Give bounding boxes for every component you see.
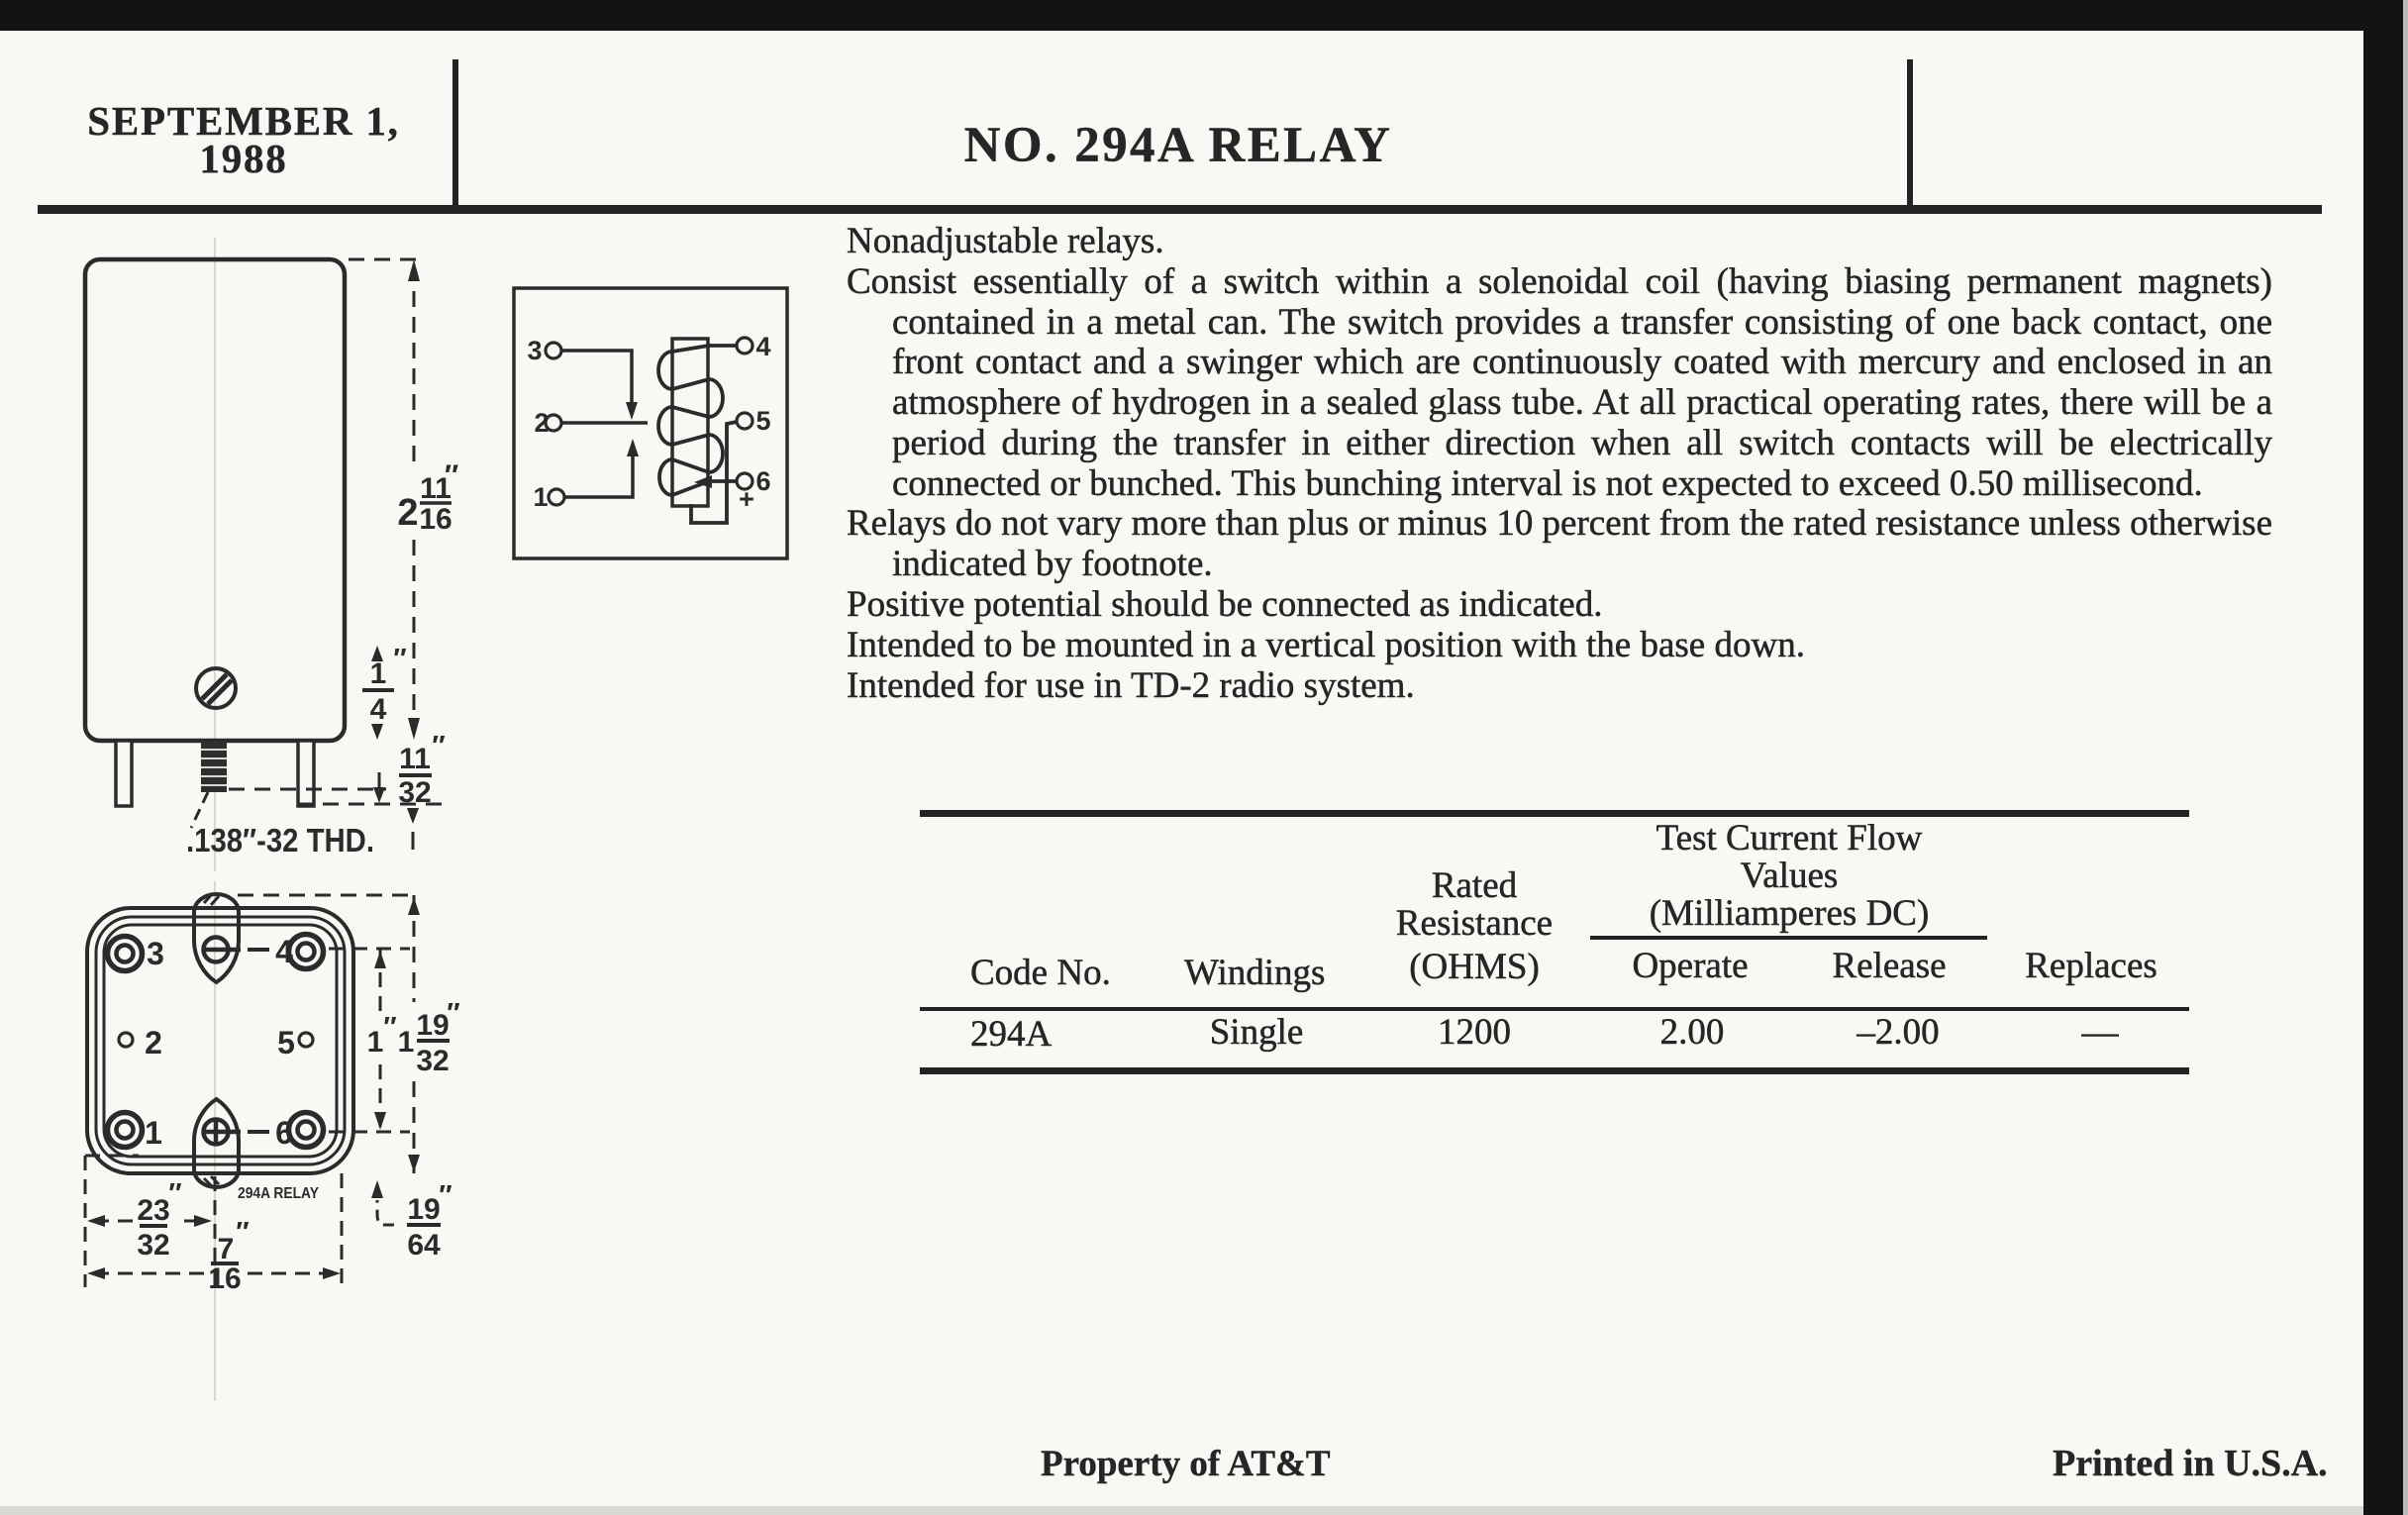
- svg-text:″: ″: [393, 643, 406, 673]
- svg-text:6: 6: [755, 466, 770, 496]
- svg-text:64: 64: [407, 1229, 441, 1262]
- svg-text:2: 2: [397, 492, 418, 534]
- svg-text:5: 5: [755, 406, 770, 436]
- svg-text:294A RELAY: 294A RELAY: [238, 1185, 319, 1202]
- svg-text:1: 1: [533, 482, 548, 512]
- svg-text:″: ″: [447, 997, 459, 1028]
- svg-text:32: 32: [398, 776, 431, 809]
- svg-text:″: ″: [445, 459, 458, 492]
- svg-text:16: 16: [419, 503, 451, 536]
- svg-text:″: ″: [439, 1179, 451, 1210]
- svg-text:19: 19: [407, 1193, 440, 1226]
- svg-text:2: 2: [534, 408, 549, 438]
- svg-text:1: 1: [370, 657, 387, 690]
- svg-text:″: ″: [168, 1177, 181, 1208]
- svg-text:7: 7: [218, 1233, 235, 1265]
- svg-text:19: 19: [416, 1009, 449, 1042]
- svg-text:″: ″: [236, 1216, 249, 1247]
- svg-text:3: 3: [527, 336, 542, 365]
- svg-text:2: 2: [145, 1025, 162, 1060]
- svg-text:.138″-32 THD.: .138″-32 THD.: [186, 822, 374, 858]
- svg-text:4: 4: [275, 934, 293, 969]
- svg-text:1: 1: [367, 1026, 384, 1059]
- svg-text:1: 1: [145, 1115, 162, 1151]
- svg-text:+: +: [739, 484, 754, 514]
- svg-text:4: 4: [370, 693, 387, 726]
- svg-text:″: ″: [383, 1011, 396, 1042]
- svg-text:32: 32: [137, 1229, 169, 1262]
- svg-text:6: 6: [275, 1115, 293, 1151]
- svg-text:16: 16: [208, 1262, 241, 1295]
- svg-text:5: 5: [277, 1025, 295, 1060]
- svg-text:4: 4: [755, 332, 770, 361]
- svg-text:3: 3: [147, 936, 164, 971]
- svg-text:11: 11: [399, 743, 431, 775]
- svg-text:1: 1: [398, 1026, 415, 1059]
- svg-text:″: ″: [432, 730, 445, 760]
- svg-text:23: 23: [137, 1194, 169, 1227]
- svg-text:32: 32: [416, 1045, 449, 1077]
